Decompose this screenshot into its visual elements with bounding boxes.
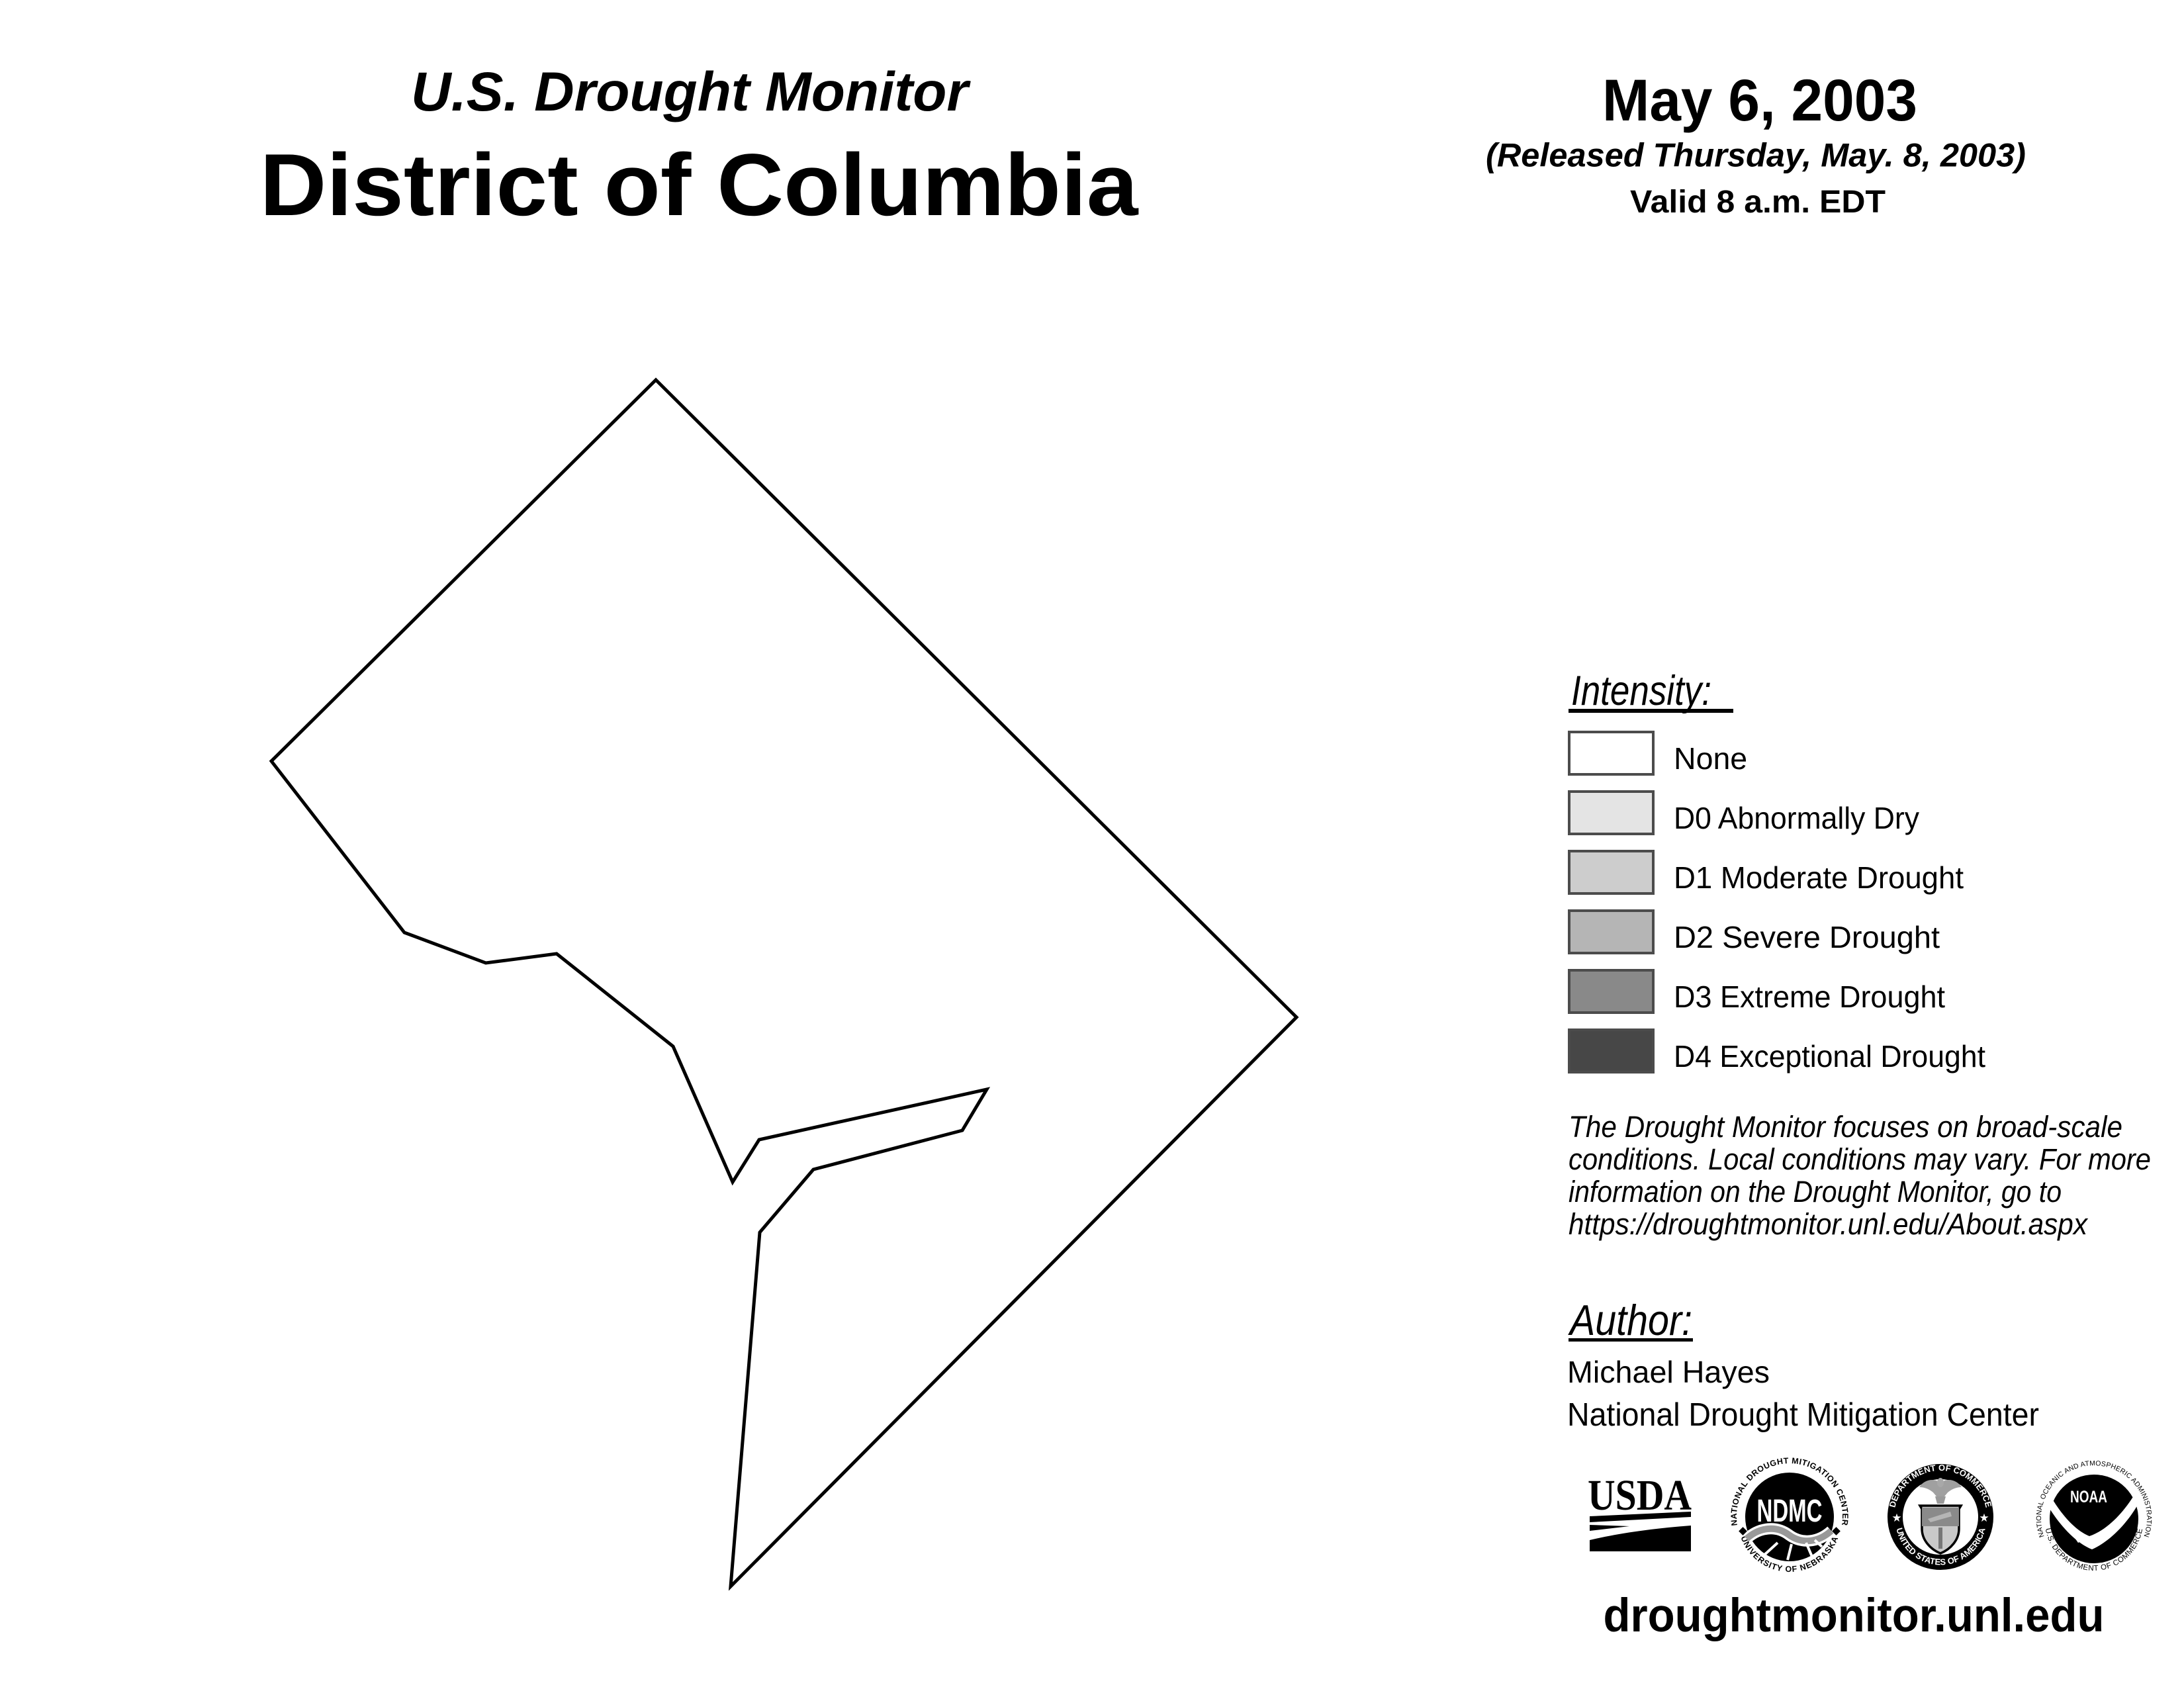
svg-text:★: ★ xyxy=(1979,1512,1989,1524)
svg-text:(Released Thursday, May. 8, 20: (Released Thursday, May. 8, 2003) xyxy=(1486,137,2026,174)
svg-text:D3 Extreme Drought: D3 Extreme Drought xyxy=(1674,980,1945,1014)
svg-text:May 6, 2003: May 6, 2003 xyxy=(1602,67,1917,133)
svg-text:District of Columbia: District of Columbia xyxy=(260,136,1139,234)
svg-text:Michael Hayes: Michael Hayes xyxy=(1567,1355,1770,1389)
svg-text:The Drought Monitor focuses on: The Drought Monitor focuses on broad-sca… xyxy=(1569,1110,2122,1144)
svg-text:Author:: Author: xyxy=(1567,1296,1692,1344)
svg-text:Valid 8 a.m. EDT: Valid 8 a.m. EDT xyxy=(1630,185,1886,220)
svg-text:D4 Exceptional Drought: D4 Exceptional Drought xyxy=(1674,1039,1985,1074)
svg-text:★: ★ xyxy=(1891,1512,1901,1524)
svg-text:NOAA: NOAA xyxy=(2070,1488,2107,1506)
svg-text:U.S. Drought Monitor: U.S. Drought Monitor xyxy=(411,60,972,122)
svg-text:droughtmonitor.unl.edu: droughtmonitor.unl.edu xyxy=(1604,1590,2105,1642)
svg-text:information on the Drought Mon: information on the Drought Monitor, go t… xyxy=(1569,1175,2062,1209)
svg-text:conditions. Local conditions m: conditions. Local conditions may vary. F… xyxy=(1569,1142,2151,1176)
svg-text:https://droughtmonitor.unl.edu: https://droughtmonitor.unl.edu/About.asp… xyxy=(1569,1207,2088,1241)
svg-text:D0 Abnormally Dry: D0 Abnormally Dry xyxy=(1674,801,1920,835)
svg-text:D1 Moderate Drought: D1 Moderate Drought xyxy=(1674,860,1964,895)
svg-text:National Drought Mitigation Ce: National Drought Mitigation Center xyxy=(1567,1397,2039,1433)
svg-text:D2 Severe Drought: D2 Severe Drought xyxy=(1674,920,1940,954)
svg-text:None: None xyxy=(1674,741,1747,776)
svg-text:Intensity:: Intensity: xyxy=(1571,668,1711,714)
